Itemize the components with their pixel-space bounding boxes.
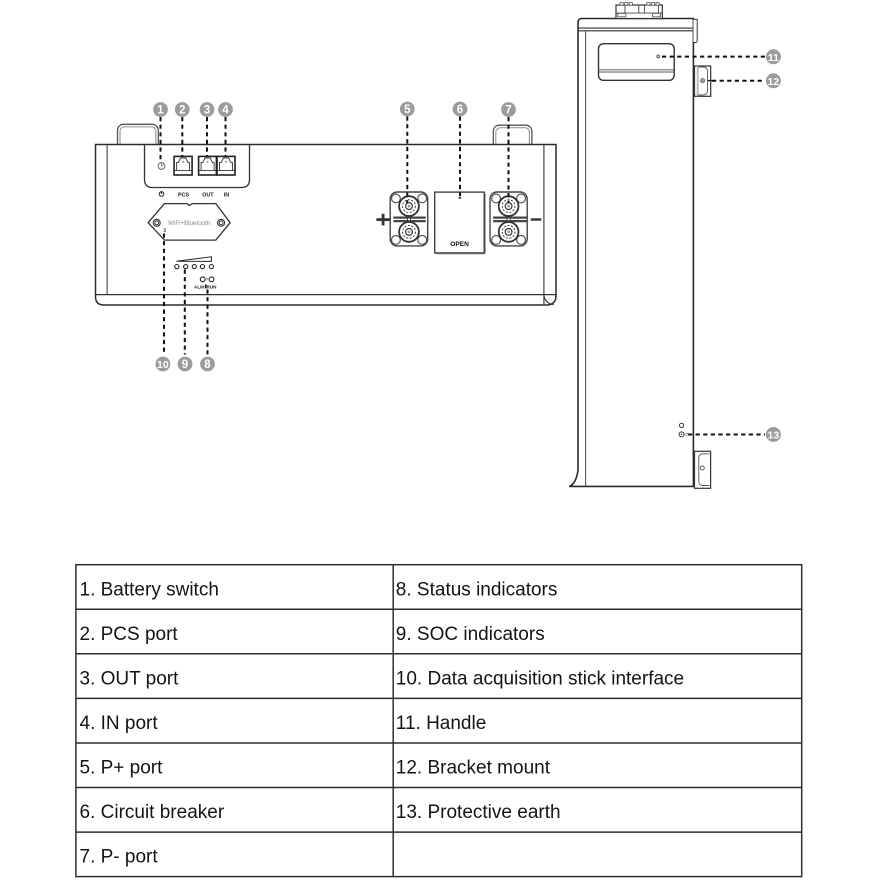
svg-text:1. Battery switch: 1. Battery switch — [80, 579, 219, 600]
svg-text:8: 8 — [204, 359, 211, 371]
svg-text:9. SOC indicators: 9. SOC indicators — [396, 624, 545, 645]
svg-text:5. P+ port: 5. P+ port — [80, 758, 164, 779]
svg-text:PCS: PCS — [178, 193, 189, 199]
svg-text:9: 9 — [182, 359, 188, 371]
svg-text:3: 3 — [204, 105, 210, 117]
svg-text:11: 11 — [768, 52, 779, 64]
svg-text:4. IN port: 4. IN port — [80, 713, 159, 734]
svg-text:12: 12 — [768, 76, 780, 88]
svg-text:13: 13 — [768, 430, 780, 442]
svg-text:OPEN: OPEN — [450, 241, 469, 248]
svg-text:11. Handle: 11. Handle — [396, 713, 487, 734]
svg-text:7: 7 — [505, 105, 511, 117]
svg-text:10: 10 — [157, 359, 169, 371]
svg-text:7. P- port: 7. P- port — [80, 847, 159, 868]
svg-text:5: 5 — [404, 104, 411, 116]
svg-text:10. Data acquisition stick int: 10. Data acquisition stick interface — [396, 668, 684, 689]
svg-text:4: 4 — [222, 105, 229, 117]
svg-text:6. Circuit breaker: 6. Circuit breaker — [80, 802, 225, 823]
svg-text:3. OUT port: 3. OUT port — [80, 668, 180, 689]
svg-text:RUN: RUN — [207, 285, 218, 290]
svg-text:OUT: OUT — [202, 193, 214, 199]
svg-text:13. Protective earth: 13. Protective earth — [396, 802, 561, 823]
svg-text:ALM: ALM — [194, 285, 204, 290]
svg-text:2. PCS port: 2. PCS port — [80, 624, 179, 645]
svg-text:WiFi+Bluetooth: WiFi+Bluetooth — [168, 220, 211, 227]
svg-text:12. Bracket mount: 12. Bracket mount — [396, 758, 551, 779]
svg-text:8. Status indicators: 8. Status indicators — [396, 579, 558, 600]
svg-text:6: 6 — [457, 104, 463, 116]
svg-text:2: 2 — [179, 105, 185, 117]
svg-text:1: 1 — [157, 105, 164, 117]
svg-text:IN: IN — [224, 193, 229, 199]
